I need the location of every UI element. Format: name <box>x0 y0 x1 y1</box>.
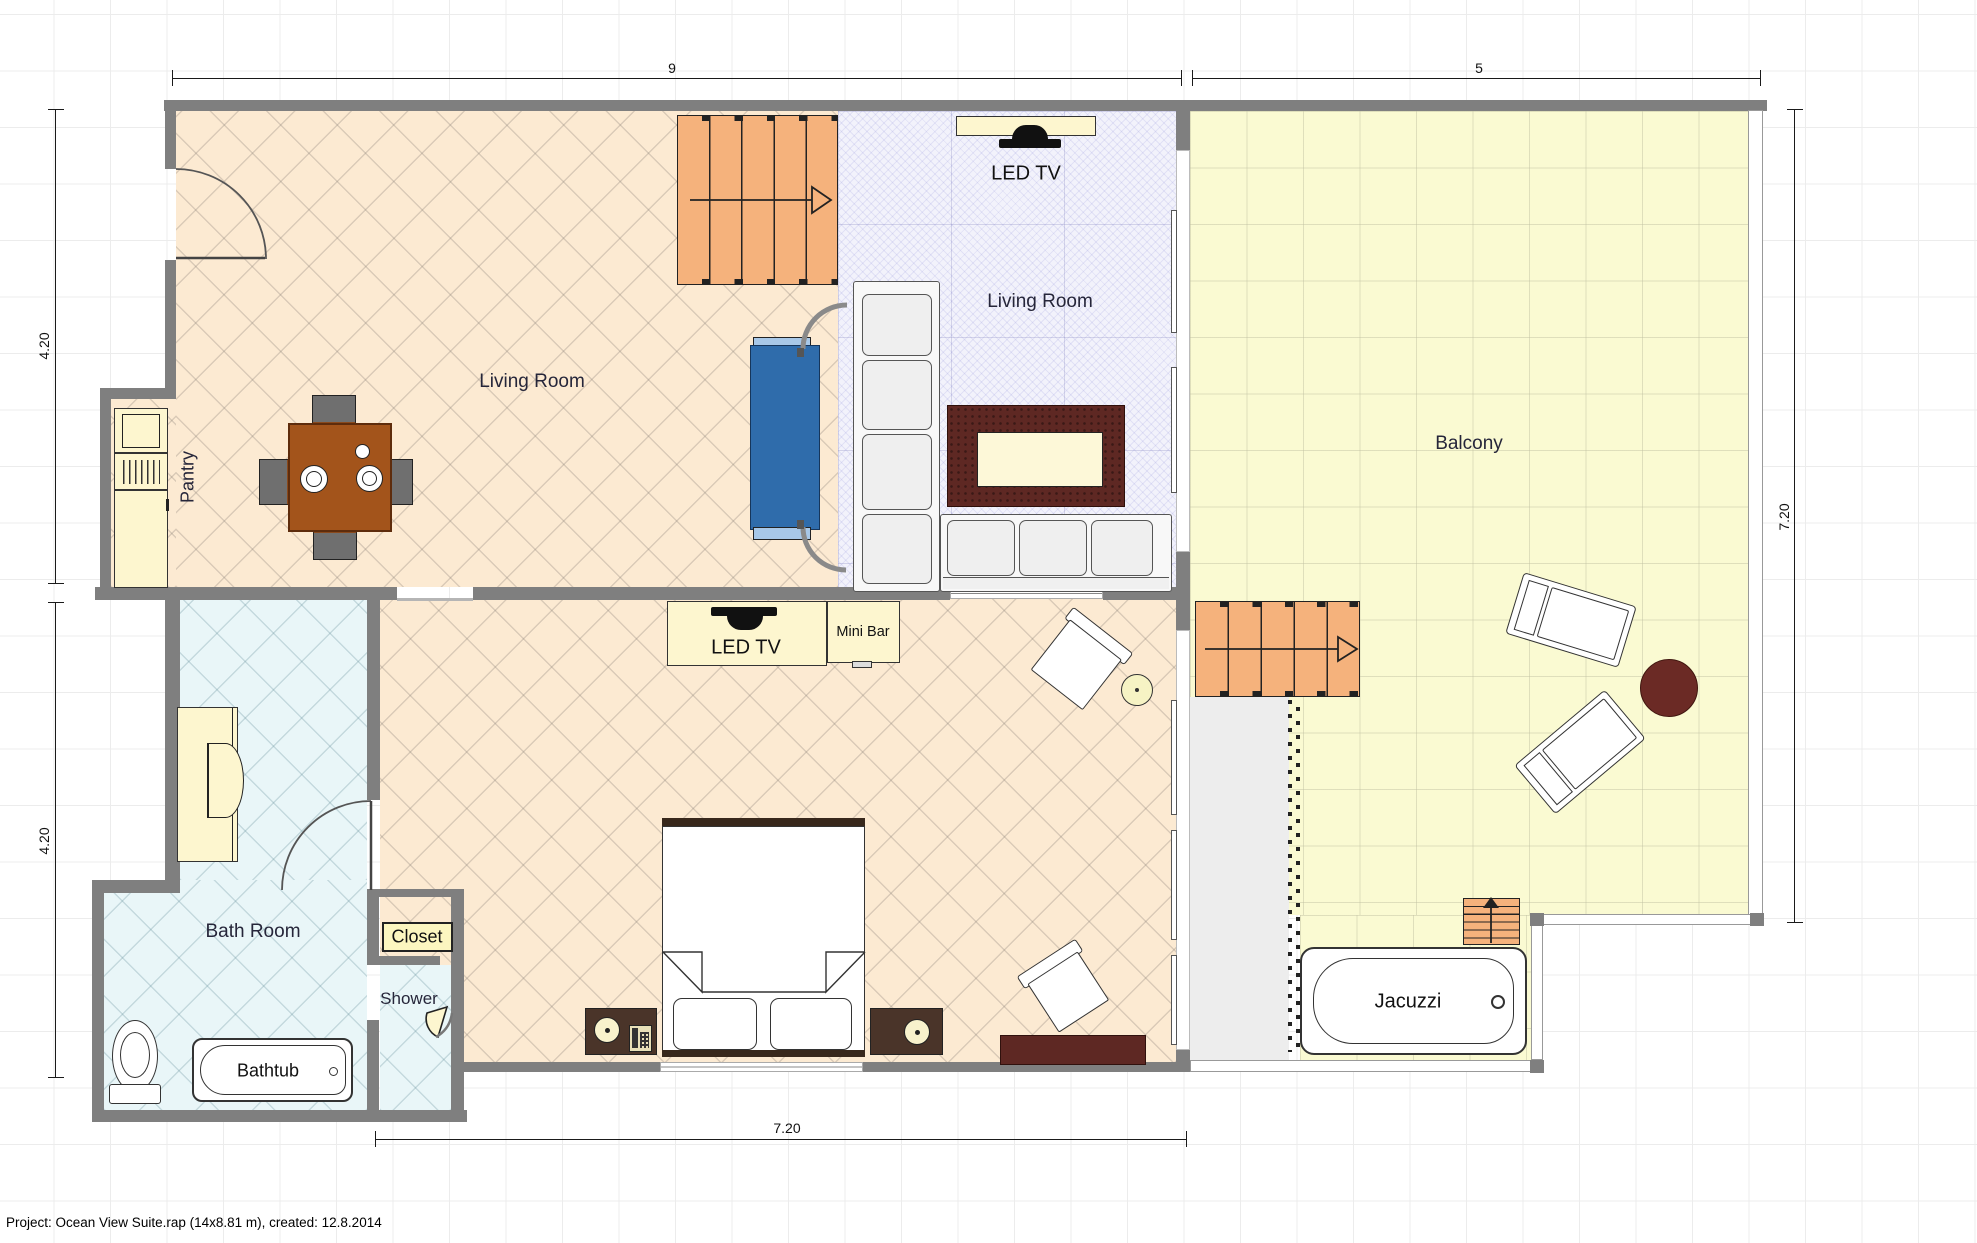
dining-chair-left[interactable] <box>259 459 290 505</box>
mini-bar-handle <box>852 661 872 668</box>
dim-tick <box>172 70 173 86</box>
wall-closet-left <box>367 889 379 965</box>
railing-ext-bottom <box>1190 1060 1532 1072</box>
wall-top <box>164 100 1767 111</box>
stair-treads <box>1196 602 1359 607</box>
room-label-living-tv: Living Room <box>987 291 1093 313</box>
stair-treads <box>1196 691 1359 696</box>
door-blue-cap-bottom <box>753 527 811 540</box>
plate <box>362 471 377 486</box>
window-frame <box>1171 830 1177 940</box>
dim-line-bottom <box>376 1139 1187 1140</box>
toilet-base <box>109 1084 161 1104</box>
pantry-fridge[interactable] <box>114 490 168 588</box>
wall-bottom-left <box>92 1110 467 1122</box>
wall-left-a <box>165 100 176 169</box>
object-label-jacuzzi: Jacuzzi <box>1375 991 1442 1014</box>
stairs-main[interactable] <box>677 115 838 285</box>
wall-bath-left-lower <box>92 880 104 1122</box>
lamp <box>594 1017 620 1043</box>
side-table[interactable] <box>1121 674 1153 706</box>
room-label-balcony: Balcony <box>1435 433 1503 455</box>
coffee-table[interactable] <box>977 432 1103 487</box>
project-footer: Project: Ocean View Suite.rap (14x8.81 m… <box>6 1215 382 1230</box>
dim-label-width-main: 9 <box>668 60 676 76</box>
dim-tick <box>375 1131 376 1147</box>
object-label-bathtub: Bathtub <box>237 1061 299 1082</box>
bed-pillow-right <box>770 998 852 1050</box>
bath-sink <box>207 743 244 818</box>
sofa-vertical[interactable] <box>853 281 940 592</box>
railing-post <box>1530 1060 1544 1073</box>
dining-chair-bottom[interactable] <box>313 530 357 560</box>
dining-chair-top[interactable] <box>312 395 356 425</box>
dim-line-width-main <box>173 78 1182 79</box>
room-label-shower: Shower <box>380 989 438 1009</box>
wall-divider-a <box>95 587 397 600</box>
bed-headboard <box>662 1050 865 1057</box>
dim-line-width-balcony <box>1193 78 1761 79</box>
wall-bath-right <box>367 598 380 800</box>
railing-post <box>1530 913 1544 926</box>
plate <box>306 471 322 487</box>
wall-closet-bottom <box>367 956 440 965</box>
bed-pillow-left <box>673 998 757 1050</box>
wall-pantry-top <box>100 388 176 399</box>
dim-tick <box>1181 70 1182 86</box>
sofa-horizontal[interactable] <box>940 514 1172 592</box>
window-frame <box>1171 367 1177 493</box>
room-label-bath: Bath Room <box>205 921 300 943</box>
pantry-unit-vent[interactable] <box>114 453 168 490</box>
toilet-bowl-inner <box>120 1032 150 1078</box>
accordion-glass-wall[interactable] <box>1288 700 1300 1052</box>
rug-bedroom[interactable] <box>1000 1035 1146 1065</box>
glass-wall-bedroom <box>1176 630 1190 1050</box>
dim-tick <box>48 109 64 110</box>
wall-shower-left <box>367 1020 379 1110</box>
tv-icon-bar <box>999 139 1061 148</box>
window-bedroom-bottom <box>660 1062 863 1072</box>
dim-label-bottom: 7.20 <box>773 1120 800 1136</box>
wall-bath-jut <box>92 880 180 893</box>
railing-balcony-right <box>1748 110 1763 916</box>
bed-footboard <box>662 818 865 826</box>
stairs-balcony[interactable] <box>1195 601 1360 697</box>
dim-label-right: 7.20 <box>1776 503 1792 530</box>
dim-tick <box>1787 109 1803 110</box>
glass-wall-living <box>1176 150 1190 552</box>
object-label-closet: Closet <box>391 927 442 948</box>
dim-line-right <box>1794 110 1795 923</box>
object-label-mini-bar: Mini Bar <box>836 624 889 640</box>
wall-left-b <box>165 260 176 399</box>
dim-label-width-balcony: 5 <box>1475 60 1483 76</box>
jacuzzi-drain <box>1491 995 1505 1009</box>
wall-bedroom-bottom-a <box>455 1062 660 1072</box>
lamp <box>904 1019 930 1045</box>
window-frame <box>1171 210 1177 333</box>
dim-tick <box>48 583 64 584</box>
dim-line-left-lower <box>55 603 56 1078</box>
railing-balcony-bottom <box>1543 914 1752 925</box>
railing-post <box>1750 913 1764 926</box>
wall-right-b <box>1176 552 1190 630</box>
object-label-led-tv-living: LED TV <box>991 163 1061 186</box>
stairs-jacuzzi[interactable] <box>1463 898 1520 945</box>
stair-treads <box>678 279 837 284</box>
floor-shower <box>380 965 451 1110</box>
dim-label-left-lower: 4.20 <box>36 827 52 854</box>
dim-tick <box>1760 70 1761 86</box>
balcony-table[interactable] <box>1640 659 1698 717</box>
window-frame <box>1171 700 1177 815</box>
object-label-led-tv-bedroom: LED TV <box>711 637 781 660</box>
wall-right-c <box>1176 1050 1190 1072</box>
bathtub-drain <box>329 1067 338 1076</box>
wall-right-a <box>1176 110 1190 150</box>
dim-tick <box>48 1077 64 1078</box>
phone[interactable] <box>629 1025 652 1052</box>
dining-chair-right[interactable] <box>389 459 413 505</box>
railing-ext-right <box>1531 925 1543 1060</box>
dim-tick <box>1192 70 1193 86</box>
wall-pantry-left <box>100 388 111 598</box>
wall-closet-top <box>367 889 463 897</box>
floor-plan-canvas: Living Room Living Room Balcony Bath Roo… <box>0 0 1977 1243</box>
dim-line-left-upper <box>55 110 56 584</box>
opening-bedroom-entry <box>397 598 473 601</box>
window-frame <box>1171 955 1177 1045</box>
pantry-unit-top[interactable] <box>114 408 168 453</box>
floor-corridor <box>1190 697 1289 1061</box>
dim-tick <box>48 602 64 603</box>
dim-tick <box>1186 1131 1187 1147</box>
stair-treads <box>678 116 837 121</box>
room-label-living-main: Living Room <box>479 371 585 393</box>
room-label-pantry: Pantry <box>178 451 199 503</box>
cup <box>355 444 370 459</box>
door-blue-panel[interactable] <box>750 345 820 530</box>
dim-tick <box>1787 922 1803 923</box>
dim-label-left-upper: 4.20 <box>36 332 52 359</box>
